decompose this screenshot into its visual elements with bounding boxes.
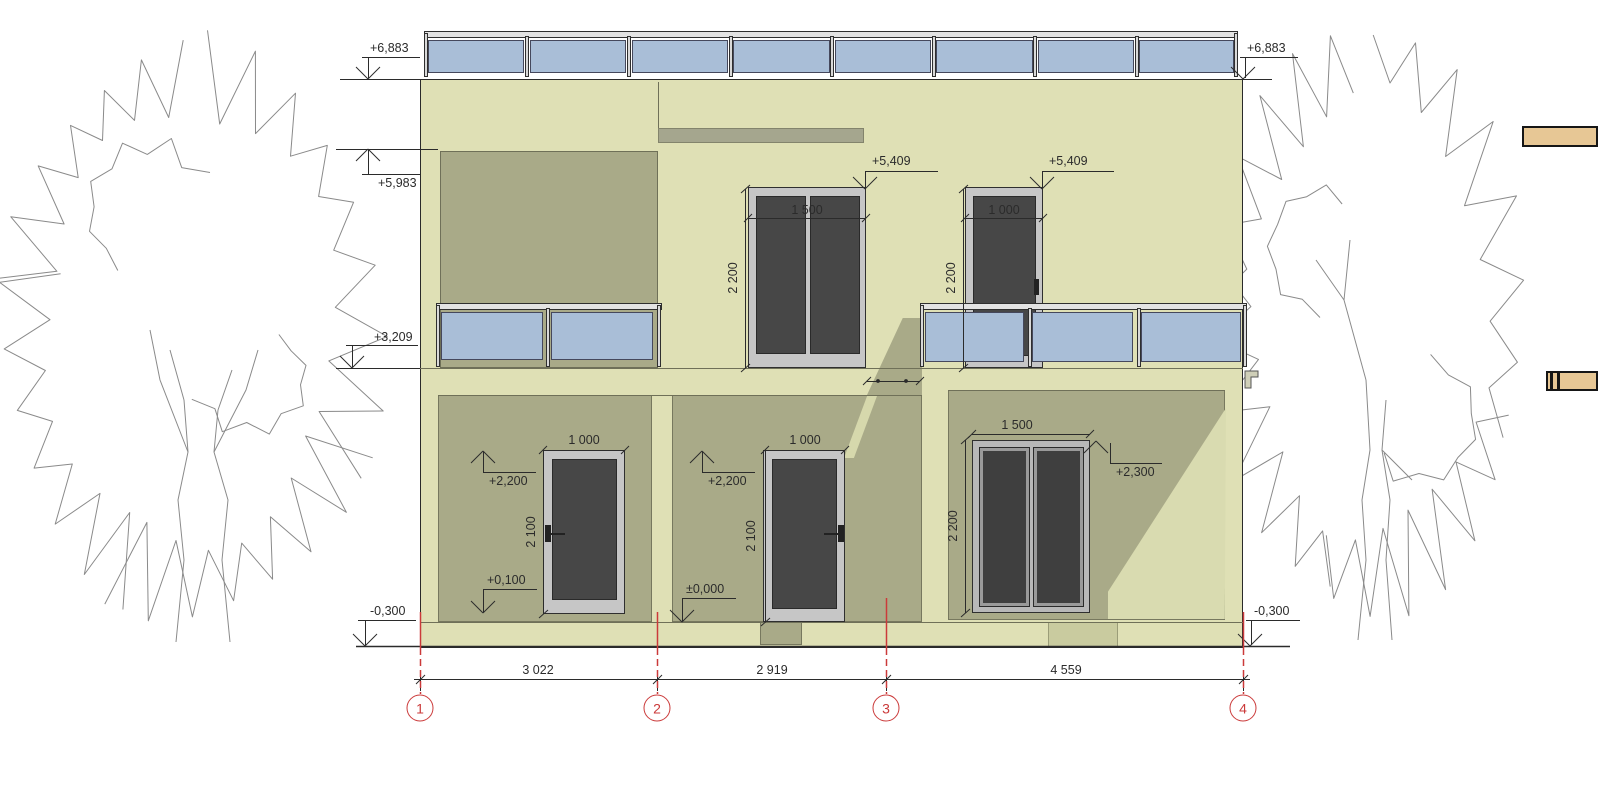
- level-label: +5,409: [1049, 155, 1088, 168]
- dim-label: 2 200: [946, 510, 960, 541]
- dim-label: 2 100: [744, 520, 758, 551]
- span-dim-label: 2 919: [756, 663, 787, 677]
- level-label: +2,300: [1116, 466, 1155, 479]
- level-label: +3,209: [374, 331, 413, 344]
- span-dim-label: 4 559: [1050, 663, 1081, 677]
- level-label: +5,983: [378, 177, 417, 190]
- dim-label: 1 000: [568, 433, 599, 447]
- level-label: +6,883: [370, 42, 409, 55]
- dim-label: 2 100: [524, 516, 538, 547]
- dim-label: 2 200: [944, 262, 958, 293]
- level-label: -0,300: [1254, 605, 1289, 618]
- level-label: +5,409: [872, 155, 911, 168]
- axis-number: 4: [1239, 700, 1247, 716]
- dim-label: 1 500: [1001, 418, 1032, 432]
- axis-bubble-2: 2: [644, 695, 671, 722]
- annotation-lines: [0, 0, 1598, 807]
- axis-bubble-1: 1: [407, 695, 434, 722]
- axis-number: 1: [416, 700, 424, 716]
- axis-bubble-3: 3: [873, 695, 900, 722]
- level-label: +2,200: [708, 475, 747, 488]
- dim-label: 1 000: [988, 203, 1019, 217]
- dim-label: 1 000: [789, 433, 820, 447]
- level-label: -0,300: [370, 605, 405, 618]
- level-label: ±0,000: [686, 583, 724, 596]
- elevation-drawing: +6,883 +6,883 +5,983 +3,209 -0,300 -0,30…: [0, 0, 1598, 807]
- level-label: +2,200: [489, 475, 528, 488]
- dim-label: 1 500: [791, 203, 822, 217]
- axis-bubble-4: 4: [1230, 695, 1257, 722]
- dim-label: 2 200: [726, 262, 740, 293]
- span-dim-label: 3 022: [522, 663, 553, 677]
- level-label: +0,100: [487, 574, 526, 587]
- axis-number: 2: [653, 700, 661, 716]
- axis-number: 3: [882, 700, 890, 716]
- level-label: +6,883: [1247, 42, 1286, 55]
